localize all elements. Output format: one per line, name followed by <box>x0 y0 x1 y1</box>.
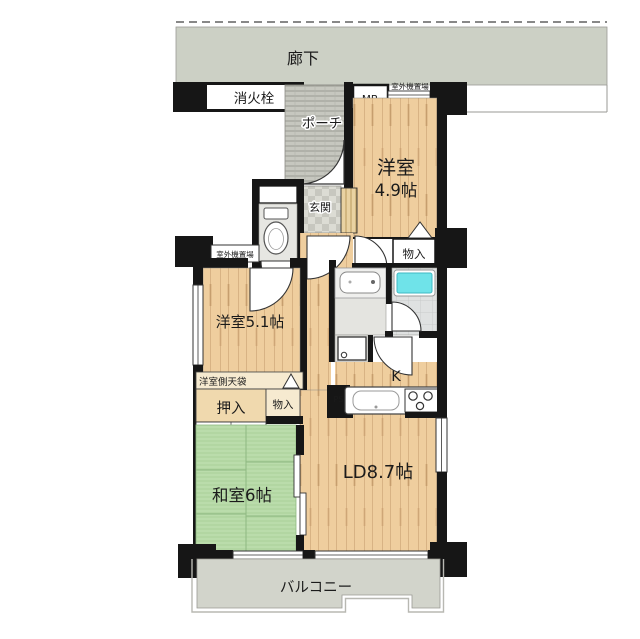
japanese-east-wall-upper <box>296 425 304 455</box>
entrance-label: 玄関 <box>309 200 331 214</box>
hall-west-wall <box>300 258 307 390</box>
fire-hydrant-label: 消火栓 <box>234 91 275 107</box>
bath-west-wall <box>386 264 392 304</box>
balcony-label: バルコニー <box>280 580 352 596</box>
room-5-1-north-wall-left <box>196 258 248 268</box>
stove-burner-2 <box>424 392 432 400</box>
hall-floor-lower <box>305 264 331 390</box>
sliding-door-leaf-2 <box>300 493 306 535</box>
east-wall-lower <box>437 472 447 552</box>
room-western-4-9-label-1: 洋室 <box>377 157 415 179</box>
room-japanese: 和室6帖 <box>196 425 306 552</box>
bathtub <box>397 273 432 293</box>
toilet-tank <box>264 208 288 219</box>
oshiire-label: 押入 <box>217 400 246 417</box>
closet-row: 洋室側天袋 押入 物入 <box>196 372 303 431</box>
japanese-east-wall-lower <box>296 535 304 552</box>
room-western-4-9-label-2: 4.9帖 <box>375 181 418 200</box>
living-dining-label: LD8.7帖 <box>343 462 414 483</box>
south-wall-seg-2 <box>303 550 315 559</box>
kitchen-label: K <box>391 369 401 385</box>
east-wall-upper <box>437 95 447 418</box>
floorplan-svg: 廊下 消火栓 ポーチ MB 室外機置場 カウンター 洋室 4.9帖 玄関 <box>0 0 640 639</box>
closet-left-label: 物入 <box>273 398 294 411</box>
east-wall <box>436 95 447 552</box>
south-wall <box>193 550 447 559</box>
washbasin-drain <box>349 281 352 284</box>
sliding-door-leaf-1 <box>294 455 300 497</box>
toilet-north-wall <box>252 179 304 186</box>
outdoor-unit-top-label: 室外機置場 <box>391 81 429 91</box>
closet-right-label: 物入 <box>403 247 426 261</box>
closet-south-wall <box>266 416 303 424</box>
washbasin-faucet <box>371 280 375 284</box>
room-western-4-9: 洋室 4.9帖 <box>353 98 437 238</box>
room-western-5-1-label: 洋室5.1帖 <box>216 313 285 331</box>
stove-burner-3 <box>416 402 423 409</box>
entrance-storage-box <box>259 186 297 203</box>
corridor-floor <box>176 27 607 85</box>
room-japanese-label: 和室6帖 <box>212 486 272 505</box>
stove-burner-1 <box>409 392 417 400</box>
floorplan-canvas: 廊下 消火栓 ポーチ MB 室外機置場 カウンター 洋室 4.9帖 玄関 <box>0 0 640 639</box>
outdoor-unit-left-label: 室外機置場 <box>216 249 254 259</box>
corridor-label: 廊下 <box>287 49 319 68</box>
pipe-space-label: PS <box>334 395 344 404</box>
fire-hydrant-block: 消火栓 <box>173 82 304 112</box>
alcove-east-wall <box>368 335 373 362</box>
shoe-cabinet <box>341 188 357 233</box>
sink-drain <box>375 406 378 409</box>
overhead-cupboard-label: 洋室側天袋 <box>199 376 247 388</box>
west-wall-upper <box>193 258 203 285</box>
porch-label: ポーチ <box>302 116 343 132</box>
